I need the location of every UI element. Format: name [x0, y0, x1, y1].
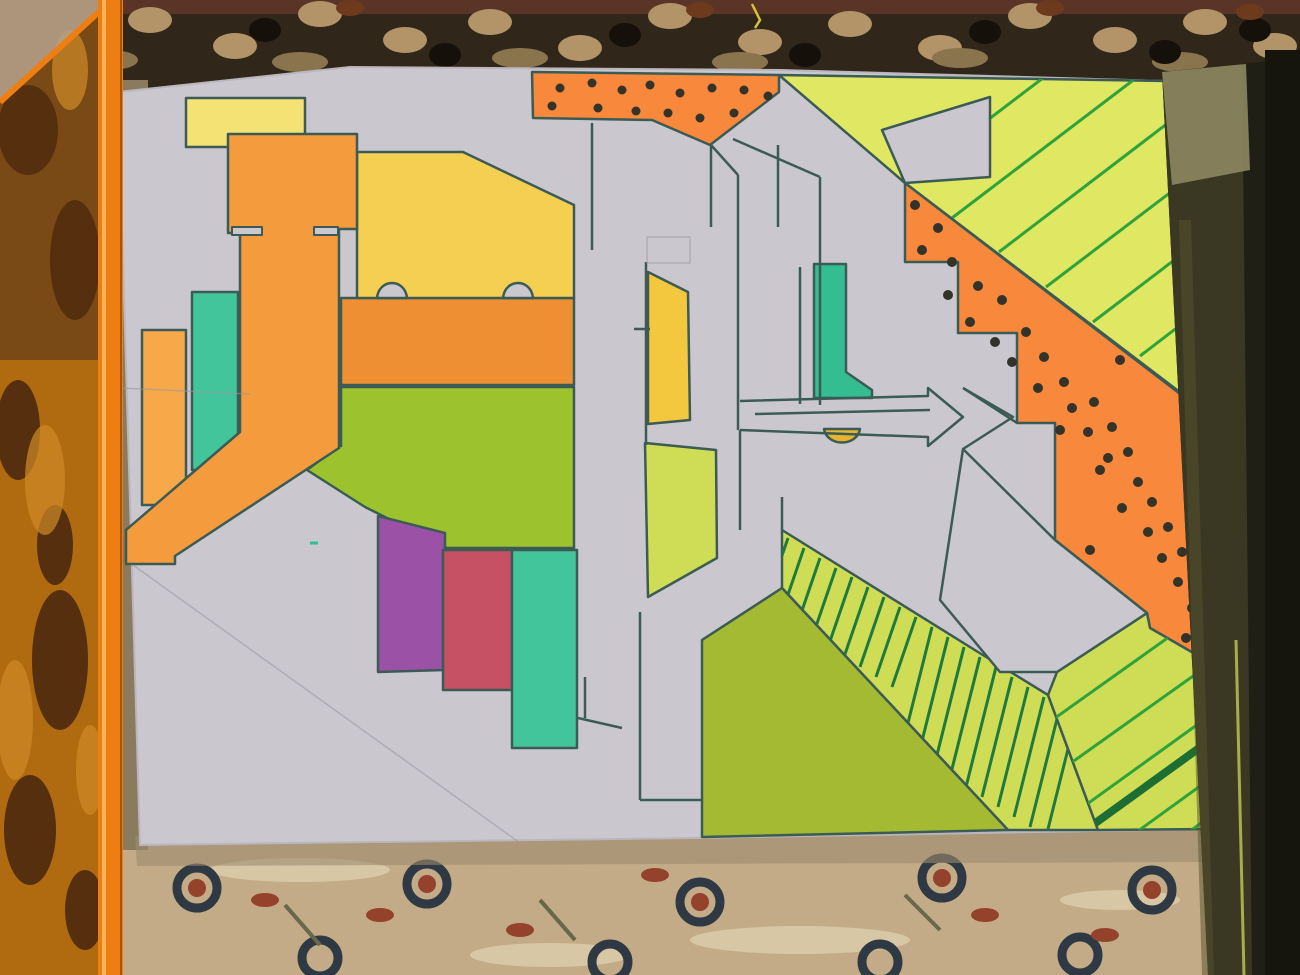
- dot: [1083, 427, 1093, 437]
- carpet-motif: [298, 1, 342, 27]
- orange-rectangle-small: [142, 330, 186, 505]
- red-rectangle: [443, 550, 512, 690]
- dot: [917, 245, 927, 255]
- rosette-center: [188, 879, 206, 897]
- blotch: [50, 200, 100, 320]
- teal-rectangle-large: [512, 550, 577, 748]
- rosette-center: [933, 869, 951, 887]
- plastic-edge-strip: [98, 0, 123, 975]
- dot: [973, 281, 983, 291]
- dot: [1115, 355, 1125, 365]
- dot: [947, 257, 957, 267]
- book-dark-edge: [1265, 50, 1300, 975]
- carpet-motif: [648, 3, 692, 29]
- dot: [1107, 422, 1117, 432]
- blotch: [32, 590, 88, 730]
- dot: [556, 84, 565, 93]
- sprig: [641, 868, 669, 882]
- dot: [696, 114, 705, 123]
- book-worn-patch: [1162, 64, 1250, 185]
- sprig: [506, 923, 534, 937]
- dot: [646, 81, 655, 90]
- dot: [1039, 352, 1049, 362]
- blotch: [0, 85, 58, 175]
- dot: [943, 290, 953, 300]
- dot: [990, 337, 1000, 347]
- light-patch: [25, 425, 65, 535]
- carpet-motif: [1093, 27, 1137, 53]
- dot: [1147, 497, 1157, 507]
- carpet-motif: [383, 27, 427, 53]
- dot: [910, 200, 920, 210]
- dot: [1143, 527, 1153, 537]
- dot: [1021, 327, 1031, 337]
- carpet-motif: [558, 35, 602, 61]
- dot: [664, 109, 673, 118]
- sprig: [366, 908, 394, 922]
- dot: [1157, 553, 1167, 563]
- carpet-motif: [789, 43, 821, 67]
- dot: [588, 79, 597, 88]
- dot: [1085, 545, 1095, 555]
- sprig: [1091, 928, 1119, 942]
- dot: [730, 109, 739, 118]
- carpet-motif: [609, 23, 641, 47]
- carpet-motif: [828, 11, 872, 37]
- j-notch-left: [232, 227, 262, 235]
- rosette-center: [418, 875, 436, 893]
- dot: [548, 102, 557, 111]
- plastic-ruler: [0, 0, 123, 975]
- scene-canvas: [0, 0, 1300, 975]
- carpet-motif: [272, 52, 328, 72]
- carpet-motif: [1036, 0, 1064, 16]
- dot: [965, 317, 975, 327]
- dot: [594, 104, 603, 113]
- photo-of-graffiti-sketch: [0, 0, 1300, 975]
- dot: [1103, 453, 1113, 463]
- dot: [676, 89, 685, 98]
- dot: [618, 86, 627, 95]
- dot: [1173, 577, 1183, 587]
- yellow-quad: [648, 272, 690, 424]
- carpet-motif: [1236, 4, 1264, 20]
- dot: [1059, 377, 1069, 387]
- dot: [1117, 503, 1127, 513]
- dot: [764, 92, 773, 101]
- carpet-motif: [932, 48, 988, 68]
- dot: [708, 84, 717, 93]
- carpet-motif: [1183, 9, 1227, 35]
- carpet-motif: [249, 18, 281, 42]
- carpet-motif: [1149, 40, 1181, 64]
- dot: [1177, 547, 1187, 557]
- purple-rectangle: [378, 516, 445, 672]
- dot: [997, 295, 1007, 305]
- carpet-motif: [213, 33, 257, 59]
- j-notch-right: [314, 227, 338, 235]
- blotch: [4, 775, 56, 885]
- dot: [1089, 397, 1099, 407]
- dot: [1067, 403, 1077, 413]
- dot: [1055, 425, 1065, 435]
- carpet-motif: [1239, 18, 1271, 42]
- dot: [1163, 522, 1173, 532]
- sprig: [971, 908, 999, 922]
- dot: [1033, 383, 1043, 393]
- dot: [933, 223, 943, 233]
- carpet-motif: [686, 2, 714, 18]
- dot: [632, 107, 641, 116]
- carpet-motif: [128, 7, 172, 33]
- dot: [1007, 357, 1017, 367]
- carpet-motif: [429, 43, 461, 67]
- carpet-motif: [738, 29, 782, 55]
- sprig: [251, 893, 279, 907]
- dot: [1181, 633, 1191, 643]
- dot: [1123, 447, 1133, 457]
- carpet-motif: [969, 20, 1001, 44]
- dot: [1133, 477, 1143, 487]
- dot: [1095, 465, 1105, 475]
- mouth-band-orange: [341, 298, 574, 385]
- carpet-motif: [492, 48, 548, 68]
- carpet-motif: [336, 0, 364, 16]
- rosette-center: [1143, 881, 1161, 899]
- rosette-center: [691, 893, 709, 911]
- dot: [740, 86, 749, 95]
- carpet-motif: [468, 9, 512, 35]
